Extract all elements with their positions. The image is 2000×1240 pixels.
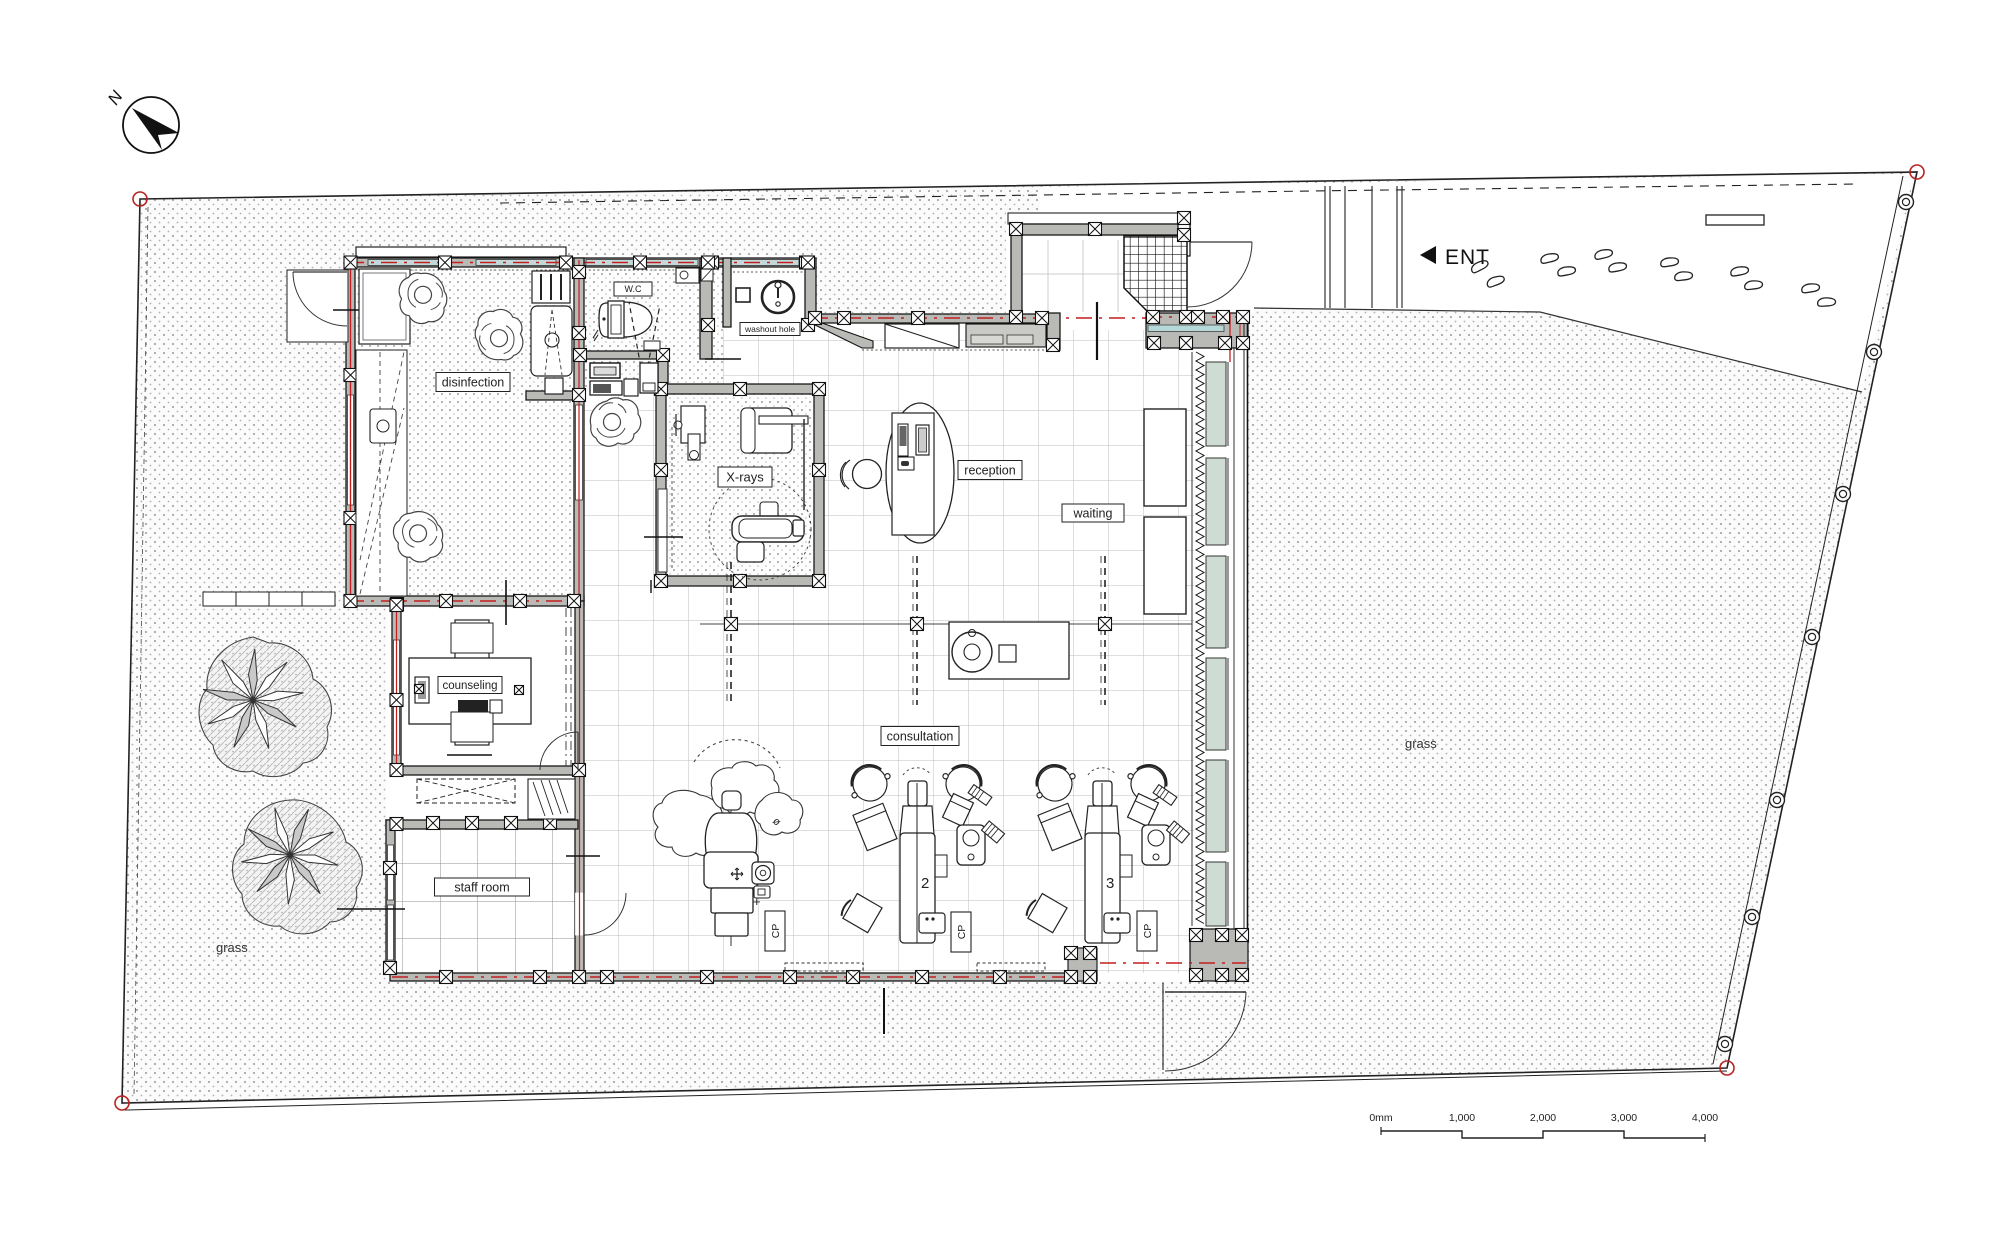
svg-text:CP: CP (956, 925, 968, 940)
svg-text:X-rays: X-rays (726, 470, 764, 485)
svg-text:washout hole: washout hole (744, 324, 795, 334)
svg-text:2: 2 (921, 875, 929, 892)
svg-text:reception: reception (964, 463, 1015, 477)
svg-text:grass: grass (216, 940, 248, 955)
svg-text:+: + (753, 894, 761, 909)
svg-text:consultation: consultation (887, 729, 954, 743)
svg-text:4,000: 4,000 (1692, 1112, 1718, 1124)
svg-text:staff room: staff room (454, 880, 509, 894)
svg-text:waiting: waiting (1073, 506, 1113, 520)
svg-text:W.C: W.C (625, 284, 642, 294)
svg-text:0mm: 0mm (1369, 1112, 1393, 1124)
svg-text:disinfection: disinfection (442, 375, 505, 389)
svg-text:ENT: ENT (1445, 246, 1490, 269)
svg-text:CP: CP (1142, 924, 1154, 939)
svg-text:grass: grass (1405, 736, 1437, 751)
svg-text:CP: CP (770, 924, 782, 939)
svg-text:1,000: 1,000 (1449, 1112, 1475, 1124)
svg-text:3: 3 (1106, 875, 1114, 892)
svg-text:counseling: counseling (443, 680, 498, 692)
svg-text:2,000: 2,000 (1530, 1112, 1556, 1124)
svg-text:3,000: 3,000 (1611, 1112, 1637, 1124)
